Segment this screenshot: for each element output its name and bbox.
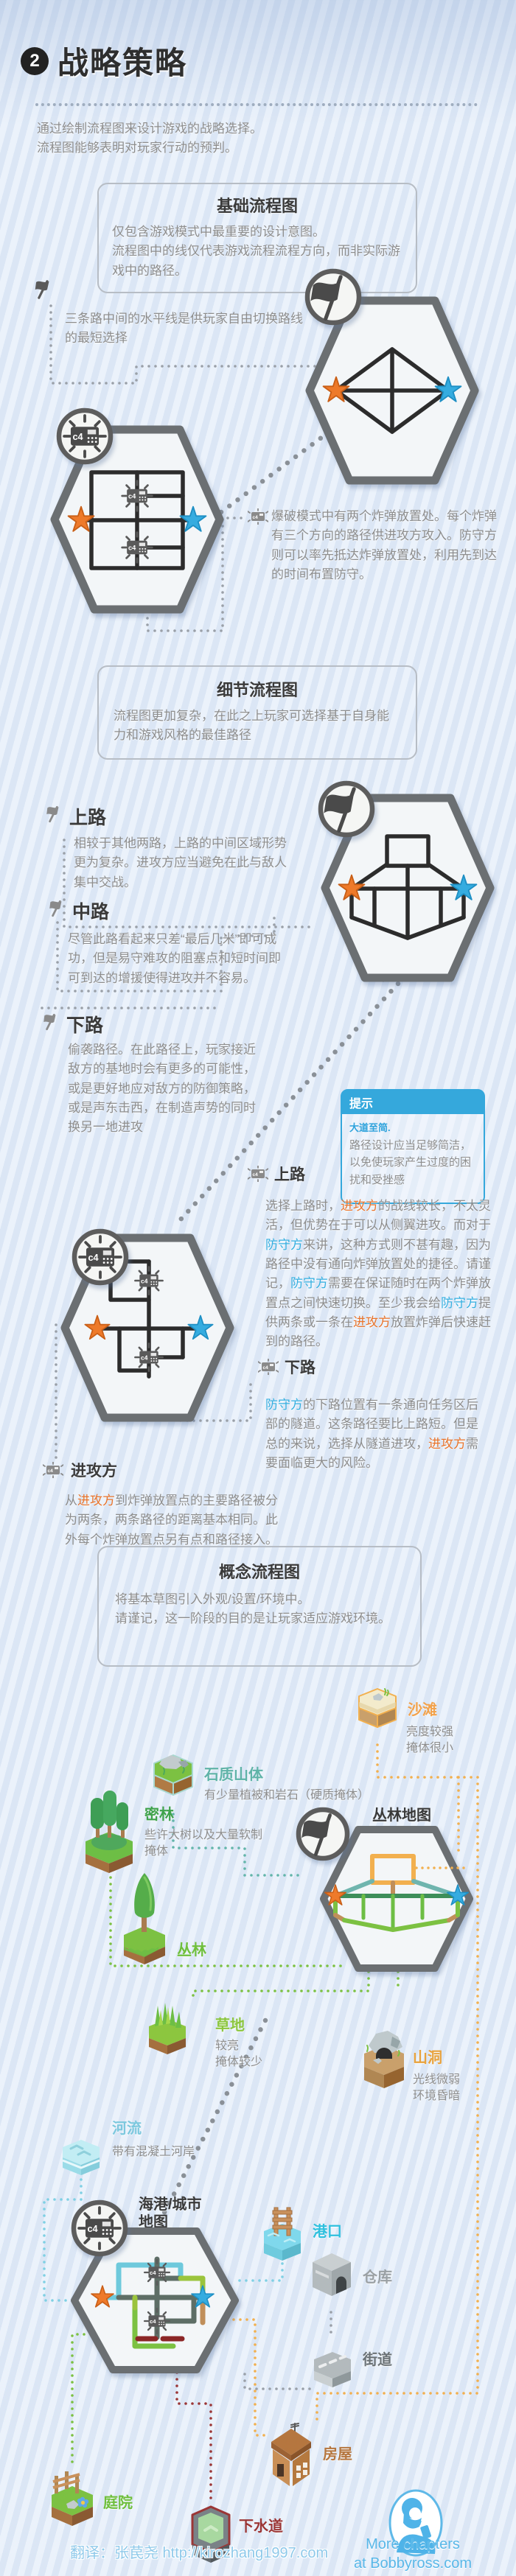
c4-bomb-icon xyxy=(79,2208,120,2249)
flag-mode-badge xyxy=(293,1805,352,1863)
port-label: 港口 xyxy=(313,2219,342,2241)
tile-grass-icon xyxy=(144,1997,190,2056)
courtyard-label: 庭院 xyxy=(103,2491,133,2512)
tile-beach-icon xyxy=(354,1686,401,1732)
ctf-top-lane-body: 相较于其他两路，上路的中间区域形势更为复杂。进攻方应当避免在此与敌人集中交战。 xyxy=(74,834,295,892)
tip-body: 路径设计应当足够简洁，以免使玩家产生过度的困扰和受挫感 xyxy=(349,1137,476,1189)
tile-courtyard-icon xyxy=(47,2463,97,2532)
bomb-note-text: 爆破模式中有两个炸弹放置处。每个炸弹有三个方向的路径供进攻方攻入。防守方则可以率… xyxy=(271,507,497,584)
bomb-top-lane-body: 选择上路时，进攻方的战线较长，不太灵活，但优势在于可以从侧翼进攻。而对于防守方来… xyxy=(265,1197,500,1352)
flag-mode-badge xyxy=(315,778,377,840)
tip-title: 提示 xyxy=(342,1091,484,1114)
dense-forest-desc: 些许大树以及大量软制掩体 xyxy=(144,1827,268,1861)
flag-mode-badge xyxy=(302,266,364,328)
detail-box-body: 流程图更加复杂，在此之上玩家可选择基于自身能力和游戏风格的最佳路径 xyxy=(114,707,401,746)
grass-desc: 较亮掩体较少 xyxy=(215,2038,262,2071)
dense-forest-label: 密林 xyxy=(144,1802,174,1824)
ctf-bottom-lane-body: 偷袭路径。在此路径上，玩家接近敌方的基地时会有更多的可能性，或是更好地应对敌方的… xyxy=(68,1040,259,1138)
rocky-label: 石质山体 xyxy=(204,1763,263,1784)
bomb-mode-badge xyxy=(54,405,116,467)
tile-port-icon xyxy=(259,2203,305,2265)
bomb-mode-badge xyxy=(69,1226,131,1288)
warehouse-label: 仓库 xyxy=(363,2265,392,2286)
flag-icon xyxy=(41,1012,60,1032)
bomb-site-a-icon xyxy=(122,481,153,511)
concept-flowchart-box: 概念流程图 将基本草图引入外观/设置/环境中。 请谨记，这一阶段的目的是让玩家适… xyxy=(97,1546,422,1667)
c4-bomb-icon xyxy=(258,1359,279,1375)
tile-warehouse-icon xyxy=(308,2249,355,2311)
detail-flowchart-title: 细节流程图 xyxy=(99,677,416,701)
bomb-bottom-lane-heading: 下路 xyxy=(285,1356,315,1378)
tip-box: 提示 大道至简. 路径设计应当足够简洁，以免使玩家产生过度的困扰和受挫感 xyxy=(341,1089,485,1204)
tile-street-icon xyxy=(310,2334,355,2389)
intro-line-1: 通过绘制流程图来设计游戏的战略选择。 xyxy=(37,119,420,139)
ctf-note-text: 三条路中间的水平线是供玩家自由切换路线的最短选择 xyxy=(65,309,308,349)
tile-house-icon xyxy=(267,2423,315,2491)
tile-cave-icon xyxy=(360,2026,408,2093)
flag-icon xyxy=(47,899,66,918)
rocky-desc: 有少量植被和岩石（硬质掩体） xyxy=(204,1788,425,1804)
ctf-mid-lane-body: 尽管此路看起来只差“最后几米”即可成功，但是易守难攻的阻塞点和短时间即可到达的增… xyxy=(68,930,282,988)
beach-desc: 亮度较强掩体很小 xyxy=(406,1724,453,1757)
intro-line-2: 流程图能够表明对玩家行动的预判。 xyxy=(37,139,420,158)
basic-flowchart-title: 基础流程图 xyxy=(99,193,416,217)
bomb-top-lane-heading: 上路 xyxy=(274,1163,305,1185)
tip-subtitle: 大道至简. xyxy=(349,1120,476,1134)
jungle-label: 丛林 xyxy=(177,1938,206,1959)
flag-marker-icon xyxy=(32,279,55,301)
concept-flowchart-title: 概念流程图 xyxy=(99,1559,420,1583)
tile-dense-forest-icon xyxy=(78,1786,140,1876)
street-label: 街道 xyxy=(363,2348,392,2369)
concept-box-line-2: 请谨记，这一阶段的目的是让玩家适应游戏环境。 xyxy=(115,1609,405,1628)
intro-text: 通过绘制流程图来设计游戏的战略选择。 流程图能够表明对玩家行动的预判。 xyxy=(37,119,420,158)
river-desc: 带有混凝土河岸 xyxy=(112,2144,259,2160)
c4-bomb-icon xyxy=(43,1462,63,1478)
tile-river-icon xyxy=(57,2122,105,2178)
c4-bomb-icon xyxy=(64,416,105,457)
c4-bomb-icon xyxy=(248,508,268,525)
bomb-site-b-icon xyxy=(122,533,153,563)
grass-label: 草地 xyxy=(215,2013,245,2034)
house-label: 房屋 xyxy=(323,2442,352,2463)
infographic-page: c4 c4 xyxy=(0,0,516,2576)
c4-bomb-icon xyxy=(248,1166,268,1182)
bomb-site-a-icon xyxy=(144,2260,170,2285)
concept-box-line-1: 将基本草图引入外观/设置/环境中。 xyxy=(115,1590,405,1609)
beach-label: 沙滩 xyxy=(408,1698,437,1719)
c4-bomb-icon xyxy=(80,1236,121,1278)
basic-flowchart-box: 基础流程图 仅包含游戏模式中最重要的设计意图。 流程图中的线仅代表游戏流程流程方… xyxy=(97,183,417,293)
dotted-separator xyxy=(35,103,478,106)
more-chapters-link[interactable]: More chaptersat Bobbyross.com xyxy=(317,2535,509,2573)
bomb-site-b-icon xyxy=(144,2309,170,2334)
ctf-bottom-lane-heading: 下路 xyxy=(66,1011,103,1037)
detail-flowchart-box: 细节流程图 流程图更加复杂，在此之上玩家可选择基于自身能力和游戏风格的最佳路径 xyxy=(97,665,417,760)
jungle-map-title: 丛林地图 xyxy=(372,1807,431,1824)
chapter-number-badge: 2 xyxy=(21,47,49,75)
translator-credit-link[interactable]: 翻译：张苠尧 http://kirozhang1997.com xyxy=(70,2541,328,2562)
basic-box-line-1: 仅包含游戏模式中最重要的设计意图。 xyxy=(112,223,402,242)
tile-jungle-icon xyxy=(116,1870,172,1967)
river-label: 河流 xyxy=(112,2116,142,2138)
ctf-top-lane-heading: 上路 xyxy=(69,803,106,830)
bomb-mode-badge xyxy=(69,2197,130,2259)
bomb-bottom-lane-body: 防守方的下路位置有一条通向任务区后部的隧道。这条路径要比上路短。但是总的来说，选… xyxy=(265,1396,487,1473)
tile-rocky-icon xyxy=(149,1752,198,1801)
page-header: 2 战略策略 xyxy=(21,38,187,83)
sewer-label: 下水道 xyxy=(239,2514,283,2535)
page-title: 战略策略 xyxy=(57,38,187,83)
cave-desc: 光线微弱环境昏暗 xyxy=(413,2072,460,2105)
attacker-heading: 进攻方 xyxy=(71,1459,117,1481)
flag-icon xyxy=(44,805,63,824)
attacker-body: 从进攻方到炸弹放置点的主要路径被分为两条，两条路径的距离基本相同。此外每个炸弹放… xyxy=(65,1491,286,1550)
ctf-mid-lane-heading: 中路 xyxy=(72,897,109,924)
harbor-map-title: 海港/城市地图 xyxy=(139,2196,202,2231)
cave-label: 山洞 xyxy=(413,2045,442,2067)
